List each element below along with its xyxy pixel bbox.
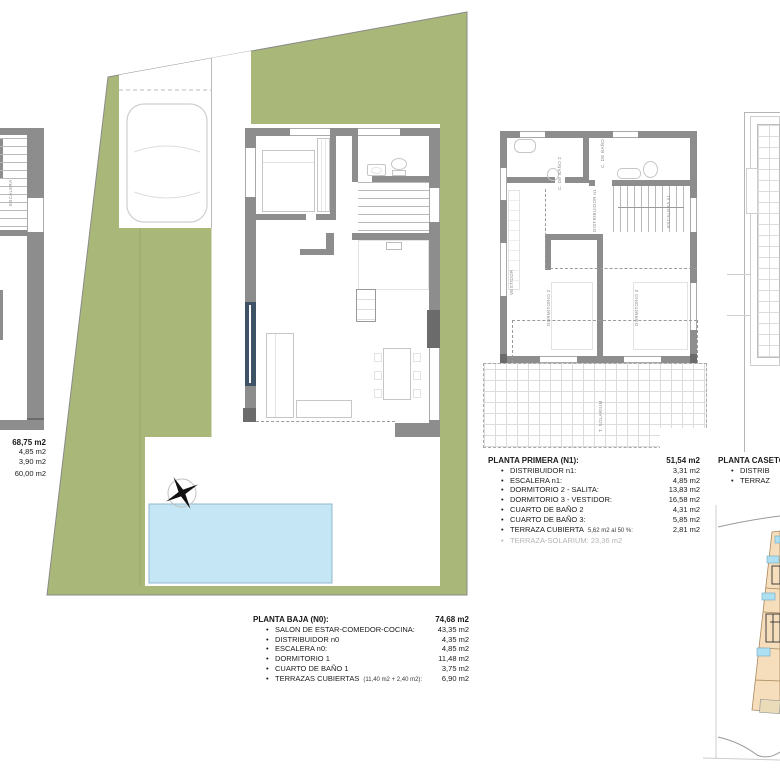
wall-segment bbox=[330, 128, 358, 136]
plan-detail bbox=[263, 162, 314, 163]
wall-segment bbox=[0, 290, 3, 340]
bathtub bbox=[514, 139, 536, 153]
wall-segment bbox=[545, 234, 603, 240]
wall-segment bbox=[300, 249, 326, 255]
plan-detail: TERRAZA CUBIERTA bbox=[510, 525, 584, 535]
wall-segment bbox=[577, 356, 624, 363]
legend-row: DISTRIB bbox=[718, 466, 780, 476]
plan-detail bbox=[727, 315, 750, 316]
stairs-left-plan bbox=[0, 138, 27, 230]
wall-segment bbox=[500, 296, 507, 363]
dashed-line bbox=[545, 189, 546, 270]
plan-detail: SALON DE ESTAR-COMEDOR-COCINA: bbox=[275, 625, 415, 635]
stairs-n0 bbox=[358, 182, 429, 233]
plan-detail: ESCALERA n1: bbox=[510, 476, 562, 486]
dashed-line bbox=[512, 320, 513, 363]
kitchen-island bbox=[356, 289, 376, 322]
legend-row: TERRAZ bbox=[718, 476, 780, 486]
plan-detail: 74,68 m2 bbox=[435, 615, 469, 625]
window bbox=[290, 128, 330, 136]
plan-detail bbox=[718, 516, 780, 527]
legend-row: ESCALERA n1:4,85 m2 bbox=[488, 476, 700, 486]
sofa bbox=[266, 333, 294, 418]
wall-segment bbox=[565, 177, 589, 183]
legend-row: PLANTA CASETON bbox=[718, 456, 780, 466]
plan-detail: DORMITORIO 1 bbox=[275, 654, 330, 664]
plan-detail: TERRAZAS CUBIERTAS bbox=[275, 674, 359, 684]
plan-detail bbox=[413, 353, 421, 362]
plan-detail bbox=[618, 207, 684, 208]
plan-detail: 5,62 m2 al 50 %: bbox=[588, 527, 633, 537]
wardrobe bbox=[317, 138, 330, 212]
window bbox=[245, 148, 256, 197]
window bbox=[429, 348, 440, 420]
legend-row: CUARTO DE BAÑO 13,75 m2 bbox=[253, 664, 469, 674]
plan-detail bbox=[746, 168, 758, 214]
plan-detail bbox=[413, 371, 421, 380]
plan-detail bbox=[744, 112, 745, 452]
plan-detail bbox=[374, 371, 382, 380]
bed bbox=[551, 282, 593, 350]
plan-detail: CUARTO DE BAÑO 2 bbox=[510, 505, 584, 515]
wall-segment bbox=[690, 232, 697, 283]
plan-detail bbox=[374, 389, 382, 398]
sofa-chaise bbox=[296, 400, 352, 418]
plan-detail bbox=[727, 274, 750, 275]
plan-detail bbox=[767, 556, 779, 563]
window bbox=[429, 188, 440, 222]
legend-row: CUARTO DE BAÑO 3:5,85 m2 bbox=[488, 515, 700, 525]
plan-detail bbox=[374, 353, 382, 362]
plan-detail bbox=[275, 334, 276, 417]
legend-planta-baja: PLANTA BAJA (N0):74,68 m2 SALON DE ESTAR… bbox=[253, 615, 469, 686]
wall-segment bbox=[243, 408, 256, 422]
window bbox=[358, 128, 400, 136]
wall-segment bbox=[316, 214, 336, 220]
wall-segment bbox=[429, 222, 440, 310]
legend-row: DORMITORIO 2 - SALITA:13,83 m2 bbox=[488, 485, 700, 495]
wall-segment bbox=[597, 240, 603, 356]
room-label: DISTRIBUIDOR n1 bbox=[592, 190, 597, 232]
wall-segment bbox=[27, 128, 44, 198]
plan-detail: 2,81 m2 bbox=[673, 525, 700, 535]
plan-detail bbox=[392, 170, 406, 176]
legend-row: PLANTA BAJA (N0):74,68 m2 bbox=[253, 615, 469, 625]
plan-detail: 13,83 m2 bbox=[669, 485, 700, 495]
wall-segment bbox=[500, 354, 507, 363]
legend-row: CUARTO DE BAÑO 24,31 m2 bbox=[488, 505, 700, 515]
legend-title: PLANTA BAJA (N0): bbox=[253, 615, 329, 625]
plan-detail: 43,35 m2 bbox=[438, 625, 469, 635]
window bbox=[520, 131, 545, 138]
wall-segment bbox=[326, 233, 334, 255]
toilet bbox=[643, 161, 658, 178]
window bbox=[613, 131, 638, 138]
area-value: 60,00 m2 bbox=[0, 469, 46, 478]
plan-detail: 4,31 m2 bbox=[673, 505, 700, 515]
legend-row: DISTRIBUIDOR n04,35 m2 bbox=[253, 635, 469, 645]
window bbox=[690, 283, 697, 330]
dashed-line bbox=[545, 268, 697, 269]
legend-row: TERRAZA-SOLARIUM: 23,36 m2 bbox=[488, 536, 700, 546]
window bbox=[540, 356, 577, 363]
wall-segment bbox=[690, 354, 697, 363]
plan-detail: CUARTO DE BAÑO 1 bbox=[275, 664, 349, 674]
plan-detail: DORMITORIO 3 - VESTIDOR: bbox=[510, 495, 612, 505]
window bbox=[624, 356, 661, 363]
dashed-line bbox=[512, 320, 697, 321]
plan-detail: 4,35 m2 bbox=[442, 635, 469, 645]
plan-detail: 3,31 m2 bbox=[673, 466, 700, 476]
plan-detail: TERRAZ bbox=[740, 476, 770, 486]
plan-detail bbox=[760, 699, 780, 713]
plan-detail: 6,90 m2 bbox=[442, 674, 469, 684]
area-value: 3,90 m2 bbox=[0, 457, 46, 466]
legend-row: TERRAZA CUBIERTA5,62 m2 al 50 %:2,81 m2 bbox=[488, 525, 700, 537]
plan-detail bbox=[718, 737, 780, 757]
plan-detail: 3,75 m2 bbox=[442, 664, 469, 674]
plan-detail: CUARTO DE BAÑO 3: bbox=[510, 515, 586, 525]
dashed-line bbox=[697, 320, 698, 363]
glazing-window-blue bbox=[245, 302, 256, 386]
window bbox=[27, 198, 44, 232]
bed bbox=[633, 282, 688, 350]
plan-detail: DISTRIBUIDOR n1: bbox=[510, 466, 576, 476]
left-area-summary: 68,75 m2 4,85 m2 3,90 m2 60,00 m2 bbox=[0, 438, 46, 479]
wall-segment bbox=[690, 131, 697, 198]
legend-title: PLANTA PRIMERA (N1): bbox=[488, 456, 579, 466]
legend-title: PLANTA CASETON bbox=[718, 456, 780, 466]
wall-segment bbox=[245, 386, 256, 408]
plan-detail: DORMITORIO 2 - SALITA: bbox=[510, 485, 599, 495]
wall-segment bbox=[256, 214, 306, 220]
legend-row: DORMITORIO 3 - VESTIDOR:16,58 m2 bbox=[488, 495, 700, 505]
plan-detail bbox=[249, 305, 251, 383]
plan-detail: 5,85 m2 bbox=[673, 515, 700, 525]
plan-detail: 51,54 m2 bbox=[666, 456, 700, 466]
wall-segment bbox=[583, 131, 589, 182]
plan-detail: TERRAZA-SOLARIUM: 23,36 m2 bbox=[510, 536, 622, 546]
plan-detail bbox=[703, 758, 780, 760]
window bbox=[500, 168, 507, 200]
stairs-n1 bbox=[613, 186, 690, 232]
plan-detail bbox=[371, 167, 382, 174]
plan-detail bbox=[660, 428, 707, 448]
wall-segment bbox=[245, 197, 256, 302]
wall-segment bbox=[352, 233, 429, 240]
room-label: T. SOLARIUM bbox=[598, 390, 603, 432]
plan-detail: DISTRIB bbox=[740, 466, 770, 476]
area-value: 4,85 m2 bbox=[0, 447, 46, 456]
wall-segment bbox=[27, 232, 44, 418]
room-label: ESCALERA n1 bbox=[666, 188, 671, 228]
wall-segment bbox=[638, 131, 697, 138]
legend-row: DORMITORIO 111,48 m2 bbox=[253, 654, 469, 664]
legend-row: PLANTA PRIMERA (N1):51,54 m2 bbox=[488, 456, 700, 466]
plan-detail: DISTRIBUIDOR n0 bbox=[275, 635, 339, 645]
plan-detail: (11,40 m2 + 2,40 m2): bbox=[363, 676, 422, 686]
plan-detail bbox=[744, 112, 780, 113]
plan-detail bbox=[757, 648, 770, 656]
wall-segment bbox=[330, 136, 336, 214]
wall-segment bbox=[500, 200, 507, 243]
plan-detail: ESCALERA n0: bbox=[275, 644, 327, 654]
plan-detail: 11,48 m2 bbox=[438, 654, 469, 664]
room-label: C. DE BAÑO 2 bbox=[557, 160, 562, 190]
pool bbox=[149, 504, 332, 583]
legend-row: ESCALERA n0:4,85 m2 bbox=[253, 644, 469, 654]
plan-detail bbox=[413, 389, 421, 398]
plan-detail bbox=[757, 124, 780, 358]
wall-segment bbox=[429, 128, 440, 188]
legend-row: DISTRIBUIDOR n1:3,31 m2 bbox=[488, 466, 700, 476]
location-mini-map bbox=[700, 500, 780, 780]
plan-detail: 4,85 m2 bbox=[442, 644, 469, 654]
area-total: 68,75 m2 bbox=[0, 438, 46, 447]
floor-plan-sheet: ESCALERA bbox=[0, 0, 780, 780]
wall-segment bbox=[500, 131, 507, 168]
plan-detail: 4,85 m2 bbox=[673, 476, 700, 486]
wall-segment bbox=[0, 230, 27, 236]
legend-planta-caseton: PLANTA CASETON DISTRIB TERRAZ bbox=[718, 456, 780, 485]
room-label: VESTIDOR bbox=[509, 245, 514, 295]
legend-row: TERRAZAS CUBIERTAS(11,40 m2 + 2,40 m2):6… bbox=[253, 674, 469, 686]
legend-row: SALON DE ESTAR-COMEDOR-COCINA:43,35 m2 bbox=[253, 625, 469, 635]
room-label: C. DE BAÑO 3 bbox=[600, 138, 605, 168]
dashed-line bbox=[256, 421, 395, 422]
bed bbox=[262, 150, 315, 212]
wall-segment bbox=[395, 423, 440, 437]
window bbox=[500, 243, 507, 296]
wall-segment bbox=[589, 180, 595, 186]
plan-detail bbox=[775, 536, 780, 543]
sink bbox=[617, 168, 641, 179]
plan-detail: 16,58 m2 bbox=[669, 495, 700, 505]
cooktop bbox=[386, 242, 402, 250]
wall-segment bbox=[245, 128, 256, 148]
wall-segment bbox=[0, 420, 44, 430]
toilet bbox=[391, 158, 407, 170]
dining-table bbox=[383, 348, 411, 400]
plan-detail bbox=[762, 593, 775, 600]
wall-segment bbox=[427, 310, 440, 348]
legend-planta-primera: PLANTA PRIMERA (N1):51,54 m2 DISTRIBUIDO… bbox=[488, 456, 700, 546]
sink bbox=[367, 164, 386, 176]
room-label-escalera: ESCALERA bbox=[8, 160, 13, 206]
window bbox=[690, 198, 697, 232]
